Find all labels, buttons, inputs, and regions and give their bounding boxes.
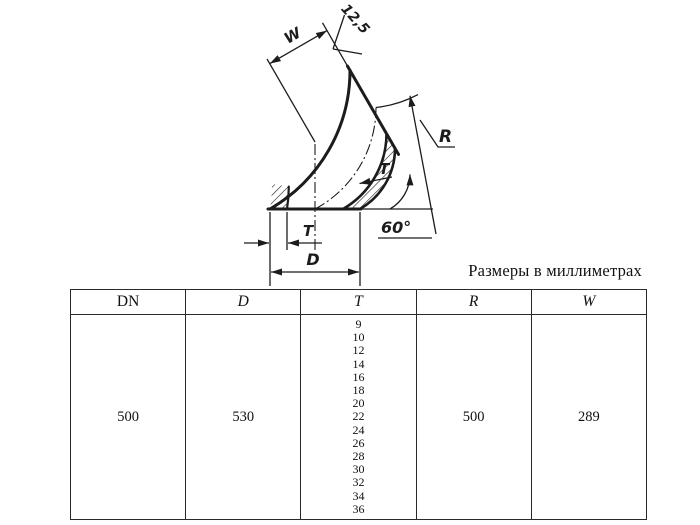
label-t-dim: T — [303, 222, 315, 240]
cell-w: 289 — [531, 315, 646, 520]
angle-arc — [390, 174, 410, 209]
cell-t: 91012141618202224262830323436 — [301, 315, 416, 520]
table-header-row: DN D T R W — [71, 290, 647, 315]
roughness-mark-bar — [333, 49, 362, 54]
header-r: R — [416, 290, 531, 315]
center-extension-line — [267, 59, 315, 142]
header-w: W — [531, 290, 646, 315]
header-t: T — [301, 290, 416, 315]
header-d: D — [186, 290, 301, 315]
elbow-drawing: W 12,5 R T 60° T D — [0, 0, 700, 290]
elbow-face-line — [348, 66, 399, 154]
label-d-dim: D — [306, 250, 319, 269]
outer-wall-hatch — [270, 184, 289, 209]
cell-t-values: 91012141618202224262830323436 — [301, 318, 415, 516]
w-dimension-left — [270, 47, 299, 64]
table-row: 500 530 91012141618202224262830323436 50… — [71, 315, 647, 520]
label-w: W — [281, 23, 306, 48]
header-dn: DN — [71, 290, 186, 315]
radius-arrow — [410, 96, 436, 234]
label-angle: 60° — [381, 218, 411, 237]
dimensions-table: DN D T R W 500 530 910121416182022242628… — [70, 289, 647, 520]
page: W 12,5 R T 60° T D Размеры в миллиметрах… — [0, 0, 700, 525]
roughness-mark-leg — [333, 15, 345, 49]
label-t-wall: T — [379, 160, 391, 178]
cell-d: 530 — [186, 315, 301, 520]
cell-dn: 500 — [71, 315, 186, 520]
cell-r: 500 — [416, 315, 531, 520]
dimensions-caption: Размеры в миллиметрах — [468, 261, 642, 281]
label-r: R — [439, 127, 452, 147]
